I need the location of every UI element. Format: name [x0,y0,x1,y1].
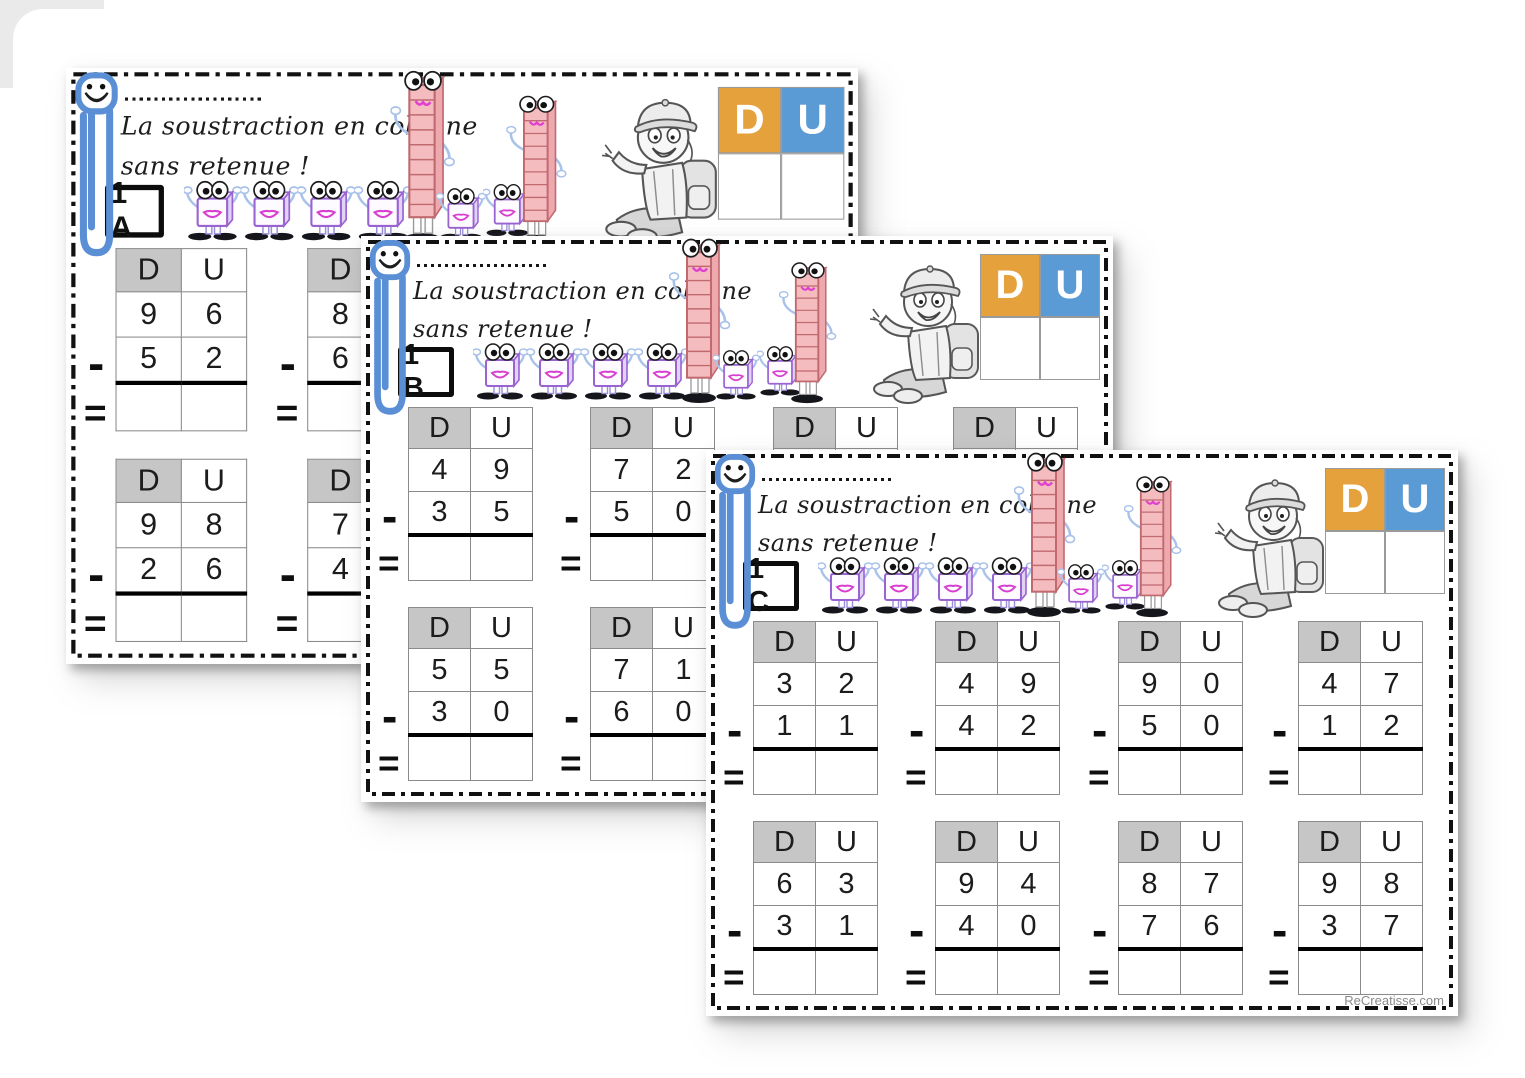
legend-empty-cell [1325,531,1385,594]
equals-sign: = [1268,959,1290,996]
tens-legend-cell: D [718,87,781,153]
minuend-units: 8 [1361,863,1423,906]
minus-sign: - [909,707,924,753]
subtrahend-units: 0 [471,692,533,735]
subtraction-problem: -=DU4935 [408,407,533,581]
units-header: U [1181,822,1243,863]
tens-header: D [116,459,181,502]
result-units [1361,949,1423,995]
subtrahend-tens: 5 [116,337,181,382]
subtrahend-tens: 6 [591,692,653,735]
units-header: U [1181,622,1243,663]
subtraction-problem: -=DU5530 [408,607,533,781]
du-grid: DU5530 [408,607,533,781]
equals-sign: = [1088,959,1110,996]
du-legend-table: DU [1325,468,1445,594]
minuend-tens: 7 [591,449,653,492]
tens-header: D [774,408,836,449]
units-header: U [998,822,1060,863]
minus-sign: - [909,907,924,953]
sheet-1c: La soustraction en colonnesans retenue !… [706,450,1458,1016]
legend-empty-cell [718,153,781,219]
minus-sign: - [280,339,296,387]
minuend-units: 0 [1181,663,1243,706]
subtraction-problem: -=DU9050 [1118,621,1243,795]
equals-sign: = [723,959,745,996]
boy-clipart [1211,476,1339,624]
du-grid: DU7250 [590,407,715,581]
units-legend-cell: U [781,87,844,153]
unit-cube-character [298,171,355,241]
minuend-units: 4 [998,863,1060,906]
subtrahend-tens: 3 [409,492,471,535]
du-legend-table: DU [718,87,844,220]
minuend-units: 5 [471,649,533,692]
subtraction-problem: -=DU9652 [116,248,248,431]
boy-clipart [866,262,994,410]
result-tens [936,749,998,795]
tens-header: D [1299,622,1361,663]
equals-sign: = [1088,759,1110,796]
units-header: U [1361,822,1423,863]
subtrahend-units: 0 [998,906,1060,949]
result-tens [1299,749,1361,795]
tens-header: D [954,408,1016,449]
equals-sign: = [84,604,107,643]
legend-empty-cell [1385,531,1445,594]
subtrahend-units: 6 [1181,906,1243,949]
worksheet-page-1c: La soustraction en colonnesans retenue !… [706,450,1458,1016]
tens-rod-character [1124,474,1182,618]
minuend-tens: 5 [409,649,471,692]
units-legend-cell: U [1040,254,1100,317]
watermark: ReCreatisse.com [1344,993,1444,1008]
tens-rod-character [506,93,567,245]
unit-cube-character [818,548,872,614]
subtrahend-units: 1 [816,906,878,949]
units-header: U [816,822,878,863]
minuend-tens: 7 [591,649,653,692]
units-header: U [1361,622,1423,663]
minuend-tens: 4 [936,663,998,706]
units-header: U [836,408,898,449]
subtrahend-tens: 4 [936,706,998,749]
subtrahend-units: 2 [998,706,1060,749]
du-grid: DU3211 [753,621,878,795]
subtrahend-tens: 3 [754,906,816,949]
tens-legend-cell: D [1325,468,1385,531]
minuend-units: 9 [471,449,533,492]
subtrahend-units: 2 [181,337,246,382]
du-grid: DU4942 [935,621,1060,795]
minus-sign: - [280,549,296,597]
minuend-tens: 8 [1119,863,1181,906]
subtrahend-tens: 3 [409,692,471,735]
minuend-tens: 3 [754,663,816,706]
subtraction-problem: -=DU9837 [1298,821,1423,995]
result-units [471,535,533,581]
subtrahend-tens: 1 [1299,706,1361,749]
subtraction-problem: -=DU3211 [753,621,878,795]
units-header: U [181,459,246,502]
tens-legend-cell: D [980,254,1040,317]
subtraction-problem: -=DU8776 [1118,821,1243,995]
result-units [816,749,878,795]
minuend-tens: 9 [1299,863,1361,906]
equals-sign: = [560,745,582,782]
minus-sign: - [1092,907,1107,953]
result-tens [936,949,998,995]
result-tens [116,593,181,641]
legend-empty-cell [1040,317,1100,380]
result-tens [1119,949,1181,995]
subtrahend-units: 1 [816,706,878,749]
unit-cube-character [926,548,980,614]
subtraction-problem: -=DU7250 [590,407,715,581]
minus-sign: - [88,549,104,597]
equals-sign: = [723,759,745,796]
equals-sign: = [905,759,927,796]
units-header: U [653,408,715,449]
result-tens [1119,749,1181,795]
result-tens [591,535,653,581]
subtrahend-units: 0 [1181,706,1243,749]
minus-sign: - [88,339,104,387]
result-units [998,749,1060,795]
legend-empty-cell [980,317,1040,380]
minuend-tens: 4 [1299,663,1361,706]
du-grid: DU7160 [590,607,715,781]
minus-sign: - [1092,707,1107,753]
equals-sign: = [84,393,107,432]
result-units [1181,949,1243,995]
subtrahend-units: 5 [471,492,533,535]
result-units [471,735,533,781]
tens-header: D [116,249,181,292]
du-grid: DU4935 [408,407,533,581]
minus-sign: - [382,493,397,539]
minuend-units: 9 [998,663,1060,706]
result-units [181,593,246,641]
tens-header: D [591,408,653,449]
equals-sign: = [1268,759,1290,796]
tens-header: D [591,608,653,649]
tens-header: D [1299,822,1361,863]
du-grid: DU9440 [935,821,1060,995]
minuend-units: 7 [1181,863,1243,906]
result-tens [409,535,471,581]
du-legend-table: DU [980,254,1100,380]
du-grid: DU8776 [1118,821,1243,995]
tens-header: D [1119,622,1181,663]
equals-sign: = [905,959,927,996]
result-tens [409,735,471,781]
dotted-line [417,264,549,267]
result-tens [754,949,816,995]
units-header: U [471,608,533,649]
subtrahend-units: 7 [1361,906,1423,949]
unit-cube-character [241,171,298,241]
unit-cube-character [437,180,485,241]
unit-cube-character [1058,556,1104,614]
result-units [816,949,878,995]
subtrahend-tens: 3 [1299,906,1361,949]
minuend-tens: 9 [1119,663,1181,706]
subtraction-problem: -=DU6331 [753,821,878,995]
tens-header: D [409,608,471,649]
tens-rod-character [779,260,837,404]
subtrahend-tens: 1 [754,706,816,749]
result-units [1361,749,1423,795]
minus-sign: - [1272,907,1287,953]
minuend-tens: 4 [409,449,471,492]
minus-sign: - [564,493,579,539]
result-units [998,949,1060,995]
units-header: U [998,622,1060,663]
units-header: U [1016,408,1078,449]
minus-sign: - [564,693,579,739]
unit-cube-character [527,334,581,400]
minus-sign: - [1272,707,1287,753]
subtrahend-units: 2 [1361,706,1423,749]
du-grid: DU9826 [116,459,248,642]
result-tens [591,735,653,781]
equals-sign: = [276,393,299,432]
tens-header: D [754,622,816,663]
subtrahend-tens: 5 [591,492,653,535]
result-tens [116,382,181,430]
subtrahend-tens: 7 [1119,906,1181,949]
tens-header: D [1119,822,1181,863]
minuend-units: 8 [181,502,246,547]
du-grid: DU9050 [1118,621,1243,795]
tens-header: D [754,822,816,863]
minuend-tens: 9 [116,292,181,337]
paperclip-icon [367,240,413,426]
subtraction-problem: -=DU4712 [1298,621,1423,795]
legend-empty-cell [781,153,844,219]
unit-cube-character [713,342,759,400]
subtraction-problem: -=DU9826 [116,459,248,642]
result-units [1181,749,1243,795]
dotted-line [762,478,894,481]
subtraction-problem: -=DU7160 [590,607,715,781]
minuend-tens: 6 [754,863,816,906]
equals-sign: = [378,745,400,782]
subtrahend-tens: 2 [116,548,181,593]
subtraction-problem: -=DU9440 [935,821,1060,995]
paperclip-icon [712,454,758,640]
minus-sign: - [727,907,742,953]
paperclip-icon [72,72,120,268]
units-header: U [471,408,533,449]
subtrahend-tens: 5 [1119,706,1181,749]
subtrahend-tens: 4 [936,906,998,949]
tens-header: D [936,822,998,863]
du-grid: DU4712 [1298,621,1423,795]
unit-cube-character [184,171,241,241]
unit-cube-character [872,548,926,614]
units-header: U [816,622,878,663]
minuend-units: 3 [816,863,878,906]
boy-clipart [598,95,733,251]
minus-sign: - [382,693,397,739]
units-legend-cell: U [1385,468,1445,531]
minuend-units: 7 [1361,663,1423,706]
unit-cube-character [473,334,527,400]
minuend-units: 2 [816,663,878,706]
subtraction-problem: -=DU4942 [935,621,1060,795]
units-header: U [181,249,246,292]
result-tens [754,749,816,795]
du-grid: DU9837 [1298,821,1423,995]
result-tens [1299,949,1361,995]
result-units [181,382,246,430]
minuend-tens: 9 [116,502,181,547]
equals-sign: = [560,545,582,582]
tens-header: D [936,622,998,663]
subtrahend-units: 6 [181,548,246,593]
minuend-units: 6 [181,292,246,337]
du-grid: DU9652 [116,248,248,431]
equals-sign: = [276,604,299,643]
du-grid: DU6331 [753,821,878,995]
minuend-tens: 9 [936,863,998,906]
dotted-line [125,97,264,100]
tens-header: D [409,408,471,449]
minus-sign: - [727,707,742,753]
equals-sign: = [378,545,400,582]
unit-cube-character [581,334,635,400]
